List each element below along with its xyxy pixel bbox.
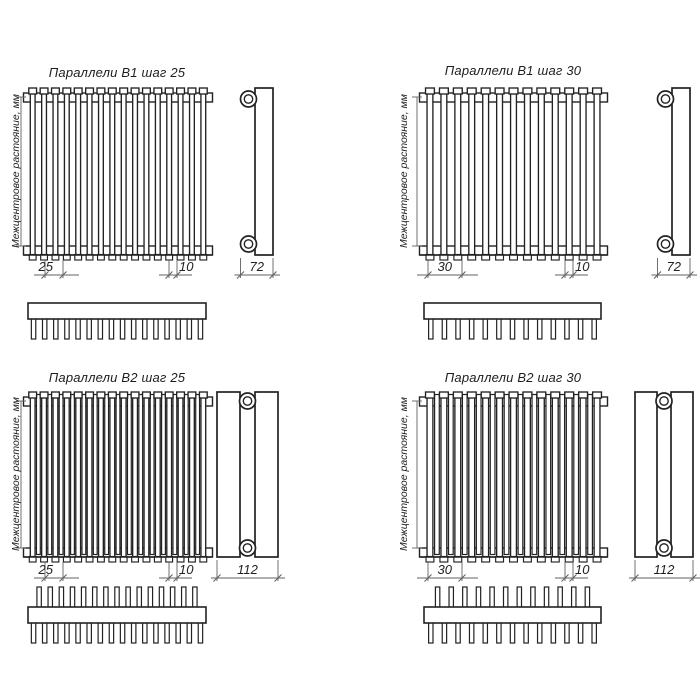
side-view-b2-step30 <box>635 392 693 557</box>
panel-drawing-b2-step25: 2510112 <box>16 392 285 643</box>
dimension-step: 25 <box>38 259 54 274</box>
panel-drawing-b1-step30: 301072 <box>412 88 697 339</box>
top-view-b1-step30 <box>424 303 601 339</box>
side-view-b1-step25 <box>241 88 274 255</box>
dimension-depth: 112 <box>654 562 675 577</box>
dimension-tube-width: 10 <box>179 562 194 577</box>
panel-drawing-b1-step25: 251072 <box>16 88 280 339</box>
panel-title-b2-step25: Параллели В2 шаг 25 <box>17 370 217 385</box>
dimension-tube-width: 10 <box>575 562 590 577</box>
panel-drawing-b2-step30: 3010112 <box>412 392 700 643</box>
dimension-depth: 72 <box>667 259 682 274</box>
dimension-depth: 72 <box>250 259 265 274</box>
top-view-b1-step25 <box>28 303 206 339</box>
dimension-step: 30 <box>438 562 453 577</box>
axis-label-b1-step25: Межцентровое растояние, мм <box>9 86 23 256</box>
dimension-tube-width: 10 <box>575 259 590 274</box>
panel-title-b2-step30: Параллели В2 шаг 30 <box>413 370 613 385</box>
front-view-b1-step25 <box>24 88 213 260</box>
axis-label-b1-step30: Межцентровое растояние, мм <box>397 86 411 256</box>
dimension-step: 25 <box>38 562 54 577</box>
radiator-drawings-canvas: 25107230107225101123010112 <box>0 0 700 700</box>
dimension-step: 30 <box>438 259 453 274</box>
top-view-b2-step30 <box>424 587 601 643</box>
dimension-tube-width: 10 <box>179 259 194 274</box>
axis-label-b2-step30: Межцентровое растояние, мм <box>397 389 411 559</box>
panel-title-b1-step30: Параллели В1 шаг 30 <box>413 63 613 78</box>
side-view-b2-step25 <box>217 392 278 557</box>
axis-label-b2-step25: Межцентровое растояние, мм <box>9 389 23 559</box>
dimension-depth: 112 <box>237 562 258 577</box>
side-view-b1-step30 <box>658 88 691 255</box>
front-view-b1-step30 <box>420 88 608 260</box>
top-view-b2-step25 <box>28 587 206 643</box>
drawing-sheet: 25107230107225101123010112 Параллели В1 … <box>0 0 700 700</box>
front-view-b2-step30 <box>420 392 608 562</box>
panel-title-b1-step25: Параллели В1 шаг 25 <box>17 65 217 80</box>
front-view-b2-step25 <box>24 392 213 562</box>
